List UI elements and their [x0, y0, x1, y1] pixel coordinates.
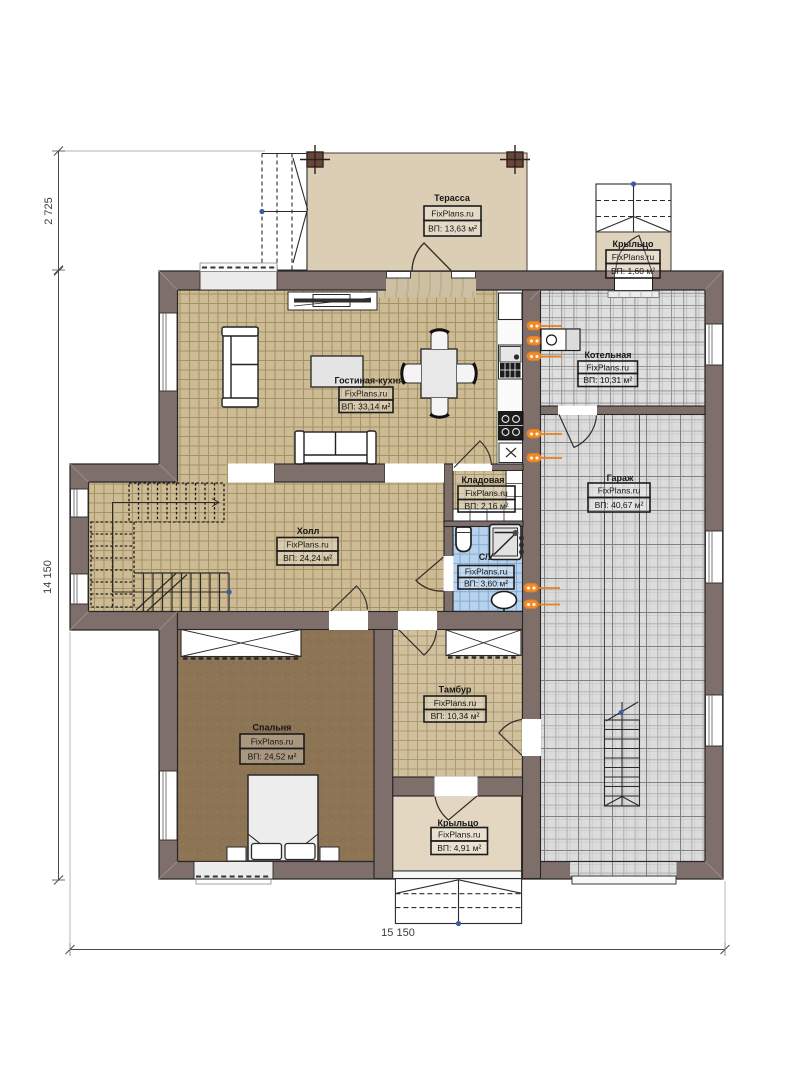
- svg-text:ВП: 10,34 м²: ВП: 10,34 м²: [431, 711, 480, 721]
- svg-text:14 150: 14 150: [42, 560, 54, 594]
- svg-text:2 725: 2 725: [43, 197, 55, 225]
- svg-text:ВП: 10,31 м²: ВП: 10,31 м²: [583, 375, 632, 385]
- svg-text:FixPlans.ru: FixPlans.ru: [465, 488, 508, 498]
- svg-text:ВП: 2,16 м²: ВП: 2,16 м²: [464, 501, 508, 511]
- svg-text:FixPlans.ru: FixPlans.ru: [434, 698, 477, 708]
- svg-text:Крыльцо: Крыльцо: [438, 818, 479, 828]
- svg-text:FixPlans.ru: FixPlans.ru: [438, 829, 481, 839]
- svg-text:Гостиная-кухня: Гостиная-кухня: [335, 376, 404, 386]
- svg-text:15 150: 15 150: [381, 927, 415, 939]
- svg-text:С/У: С/У: [479, 552, 494, 562]
- svg-text:Крыльцо: Крыльцо: [613, 239, 654, 249]
- svg-text:Тамбур: Тамбур: [439, 685, 472, 695]
- svg-text:ВП: 40,67 м²: ВП: 40,67 м²: [595, 500, 644, 510]
- svg-text:ВП: 13,63 м²: ВП: 13,63 м²: [428, 223, 477, 233]
- svg-text:Гараж: Гараж: [607, 473, 634, 483]
- svg-text:FixPlans.ru: FixPlans.ru: [612, 252, 655, 262]
- svg-text:Кладовая: Кладовая: [461, 475, 504, 485]
- svg-text:Спальня: Спальня: [253, 723, 292, 733]
- svg-text:FixPlans.ru: FixPlans.ru: [598, 485, 641, 495]
- svg-text:ВП: 33,14 м²: ВП: 33,14 м²: [342, 401, 391, 411]
- svg-text:FixPlans.ru: FixPlans.ru: [465, 567, 508, 577]
- svg-text:FixPlans.ru: FixPlans.ru: [345, 389, 388, 399]
- svg-text:Холл: Холл: [297, 526, 320, 536]
- svg-text:FixPlans.ru: FixPlans.ru: [286, 539, 329, 549]
- svg-text:Терасса: Терасса: [434, 193, 471, 203]
- svg-text:ВП: 4,91 м²: ВП: 4,91 м²: [437, 843, 481, 853]
- svg-text:FixPlans.ru: FixPlans.ru: [431, 208, 474, 218]
- svg-text:ВП: 24,24 м²: ВП: 24,24 м²: [283, 553, 332, 563]
- svg-text:ВП: 24,52 м²: ВП: 24,52 м²: [248, 751, 297, 761]
- svg-text:ВП: 3,60 м²: ВП: 3,60 м²: [464, 578, 508, 588]
- svg-text:FixPlans.ru: FixPlans.ru: [586, 362, 629, 372]
- svg-text:ВП: 1,60 м²: ВП: 1,60 м²: [611, 266, 655, 276]
- svg-text:FixPlans.ru: FixPlans.ru: [251, 736, 294, 746]
- svg-text:Котельная: Котельная: [584, 350, 631, 360]
